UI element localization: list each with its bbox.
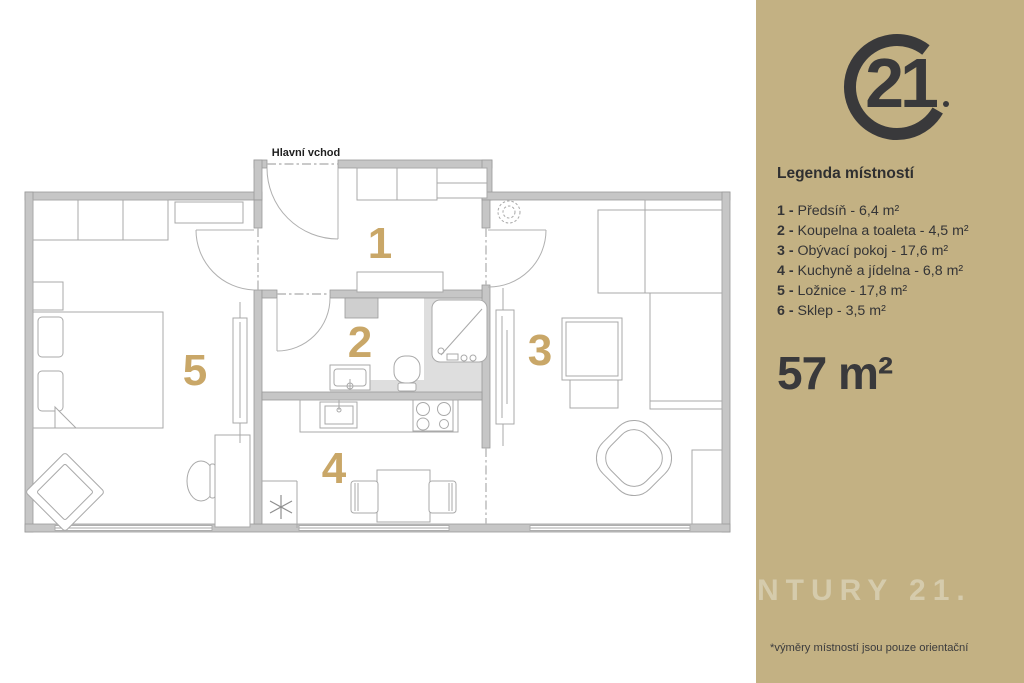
lounge-chair: [587, 411, 680, 504]
legend-item-4: 4 - Kuchyně a jídelna - 6,8 m²: [777, 261, 969, 281]
century21-logo-icon: 21: [836, 25, 966, 155]
plant: [498, 201, 520, 223]
total-area: 57 m²: [777, 346, 892, 400]
legend-item-5: 5 - Ložnice - 17,8 m²: [777, 281, 969, 301]
kitchen-sink: [320, 400, 357, 428]
toilet: [394, 356, 420, 391]
bedroom-furniture: [25, 200, 250, 532]
logo-21-text: 21: [865, 44, 937, 122]
entrance-label: Hlavní vchod: [272, 147, 340, 159]
fridge-snowflake-icon: [270, 495, 292, 519]
mirror: [233, 302, 247, 443]
wardrobe: [33, 200, 168, 240]
dining-table: [377, 470, 430, 522]
armchair: [25, 452, 104, 531]
tall-cabinet: [496, 288, 514, 446]
century21-watermark: ENTURY 21.: [756, 574, 972, 608]
chair-right: [429, 481, 456, 513]
room-number-4: 4: [322, 444, 347, 493]
room-number-3: 3: [528, 326, 552, 375]
legend-item-1: 1 - Předsíň - 6,4 m²: [777, 201, 969, 221]
legend-item-6: 6 - Sklep - 3,5 m²: [777, 301, 969, 321]
brand-sidebar: 21 Legenda místností 1 - Předsíň - 6,4 m…: [756, 0, 1024, 683]
sink: [330, 365, 370, 390]
shower: [432, 300, 487, 362]
windows: [55, 526, 690, 531]
footnote: *výměry místností jsou pouze orientační: [770, 642, 968, 654]
floor-plan: Hlavní vchod 1 2 3 4 5: [0, 0, 756, 683]
bed: [33, 312, 163, 428]
sideboard: [357, 272, 443, 292]
shelf: [175, 202, 243, 223]
kitchen-furniture: [262, 400, 458, 528]
shaft: [345, 298, 378, 318]
tv-stand: [562, 318, 622, 408]
legend-item-2: 2 - Koupelna a toaleta - 4,5 m²: [777, 221, 969, 241]
nightstand: [33, 282, 63, 310]
room-number-2: 2: [348, 318, 372, 367]
legend-title: Legenda místností: [777, 165, 914, 183]
legend-item-3: 3 - Obývací pokoj - 17,6 m²: [777, 241, 969, 261]
office-chair: [187, 461, 215, 501]
chair-left: [351, 481, 378, 513]
side-desk: [692, 450, 722, 524]
room-number-5: 5: [183, 346, 207, 395]
desk: [215, 435, 250, 527]
legend-list: 1 - Předsíň - 6,4 m² 2 - Koupelna a toal…: [777, 201, 969, 321]
stove: [413, 400, 453, 431]
room-number-1: 1: [368, 219, 392, 268]
